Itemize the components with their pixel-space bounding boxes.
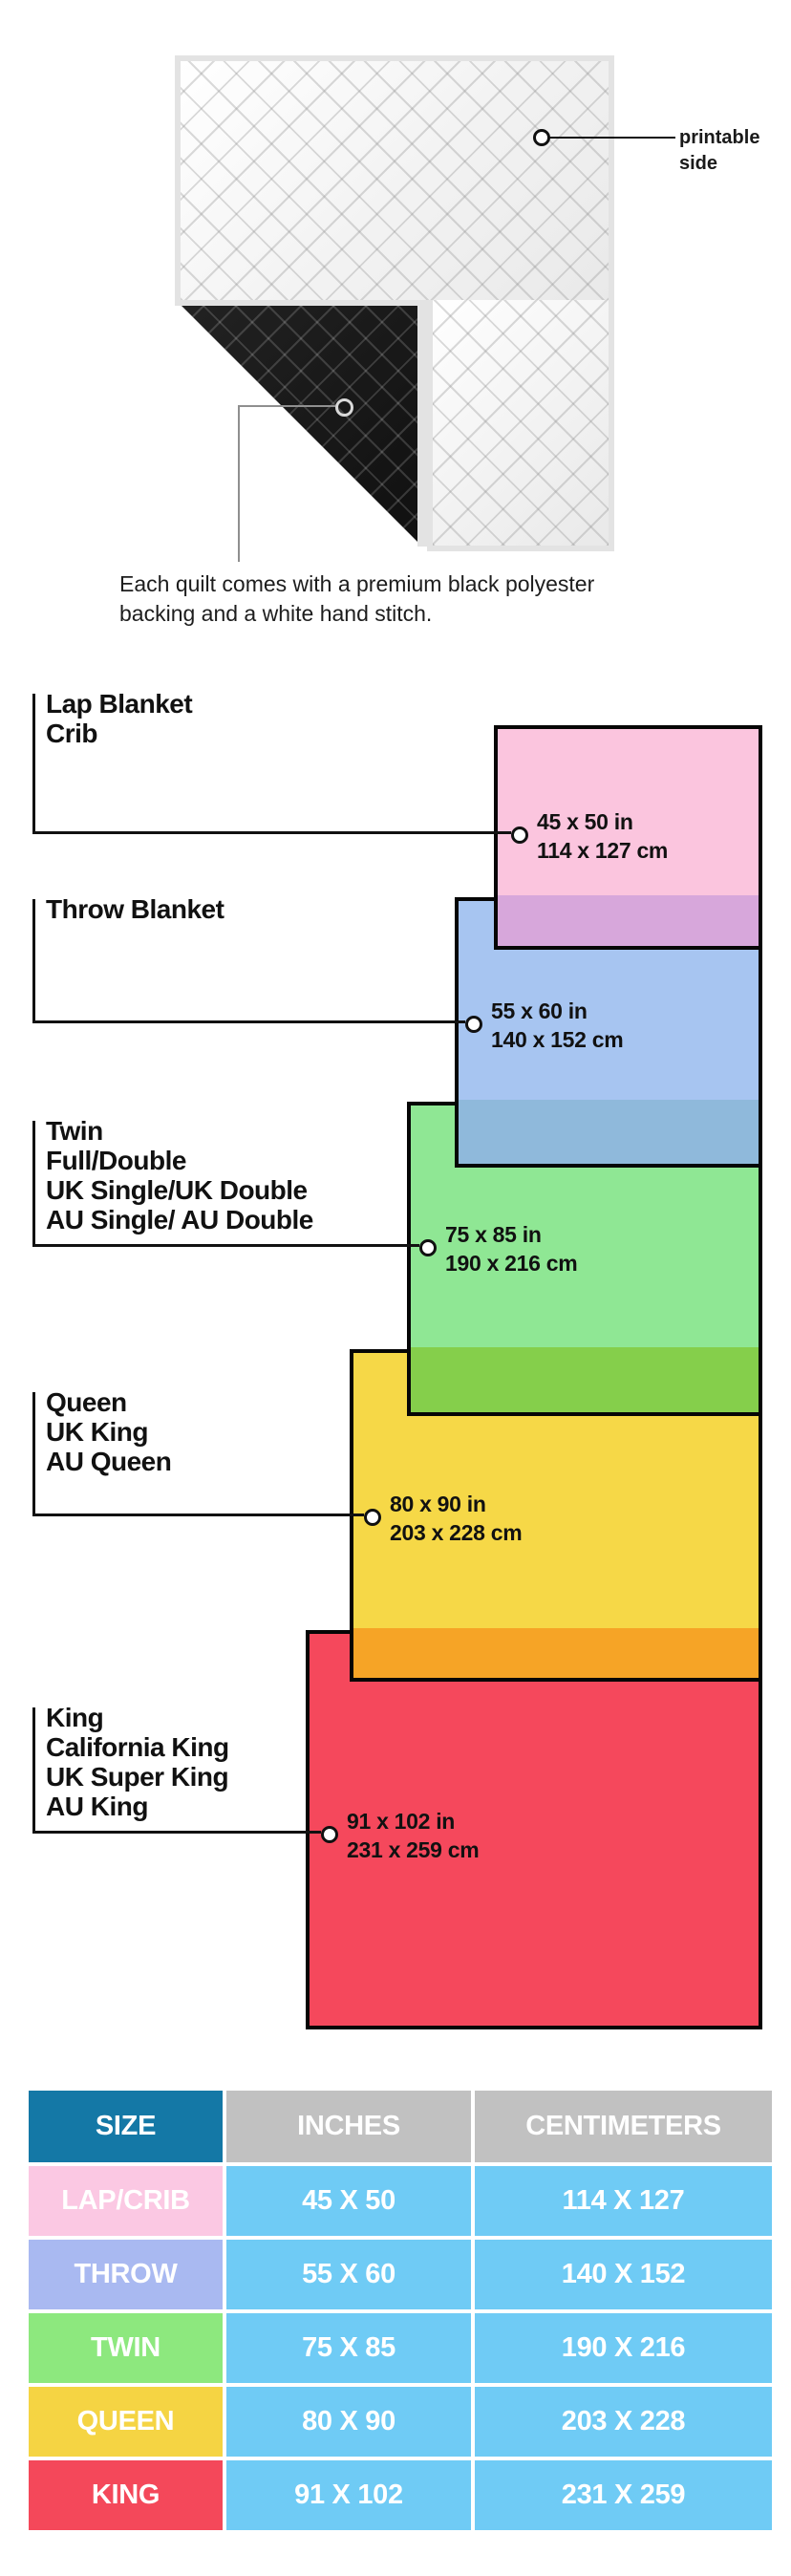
throw-callout-circle-icon <box>465 1016 482 1033</box>
table-row-lap-cm: 114 X 127 <box>475 2166 772 2236</box>
table-row-throw-cm: 140 X 152 <box>475 2240 772 2309</box>
lap-callout-circle-icon <box>511 826 528 844</box>
queen-callout-circle-icon <box>364 1509 381 1526</box>
twin-label: Twin Full/Double UK Single/UK Double AU … <box>46 1116 313 1234</box>
king-label: King California King UK Super King AU Ki… <box>46 1703 229 1821</box>
hero-caption: Each quilt comes with a premium black po… <box>119 569 594 629</box>
twin-callout-circle-icon <box>419 1239 437 1256</box>
twin-measurements: 75 x 85 in 190 x 216 cm <box>445 1220 577 1277</box>
king-callout-circle-icon <box>321 1826 338 1843</box>
table-row-king-cm: 231 X 259 <box>475 2460 772 2530</box>
table-row-queen-cm: 203 X 228 <box>475 2387 772 2457</box>
queen-measurements: 80 x 90 in 203 x 228 cm <box>390 1490 522 1547</box>
table-header-centimeters: CENTIMETERS <box>475 2091 772 2162</box>
backing-callout-line-v <box>238 405 240 562</box>
king-leader-h <box>32 1831 321 1834</box>
throw-leader-v <box>32 899 35 1023</box>
queen-leader-h <box>32 1513 364 1516</box>
lap-measurements: 45 x 50 in 114 x 127 cm <box>537 807 668 865</box>
lap-leader-v <box>32 694 35 834</box>
backing-callout-line-h <box>238 405 335 407</box>
quilt-printable-side-lower <box>427 300 614 551</box>
table-row-throw-size: THROW <box>29 2240 223 2309</box>
table-row-king-inches: 91 X 102 <box>226 2460 471 2530</box>
lap-throw-overlap <box>498 895 759 946</box>
table-row-twin-size: TWIN <box>29 2313 223 2383</box>
table-header-inches: INCHES <box>226 2091 471 2162</box>
throw-leader-h <box>32 1020 465 1023</box>
queen-leader-v <box>32 1392 35 1516</box>
table-row-queen-size: QUEEN <box>29 2387 223 2457</box>
twin-queen-overlap <box>411 1347 759 1412</box>
throw-twin-overlap <box>459 1100 759 1164</box>
printable-side-callout-circle-icon <box>533 129 550 146</box>
printable-side-callout-line <box>549 137 675 139</box>
king-leader-v <box>32 1707 35 1834</box>
table-row-throw-inches: 55 X 60 <box>226 2240 471 2309</box>
twin-leader-h <box>32 1244 419 1247</box>
table-row-twin-inches: 75 X 85 <box>226 2313 471 2383</box>
table-row-queen-inches: 80 X 90 <box>226 2387 471 2457</box>
table-row-twin-cm: 190 X 216 <box>475 2313 772 2383</box>
table-row-lap-size: LAP/CRIB <box>29 2166 223 2236</box>
lap-label: Lap Blanket Crib <box>46 689 192 748</box>
twin-leader-v <box>32 1121 35 1247</box>
throw-label: Throw Blanket <box>46 894 224 924</box>
quilt-size-infographic: printable side Each quilt comes with a p… <box>0 0 791 2576</box>
quilt-binding-edge <box>417 306 427 547</box>
king-measurements: 91 x 102 in 231 x 259 cm <box>347 1807 479 1864</box>
table-header-size: SIZE <box>29 2091 223 2162</box>
table-row-lap-inches: 45 X 50 <box>226 2166 471 2236</box>
queen-label: Queen UK King AU Queen <box>46 1387 171 1476</box>
queen-king-overlap <box>353 1628 759 1678</box>
quilt-printable-side <box>175 55 614 306</box>
printable-side-label: printable side <box>679 125 759 177</box>
lap-leader-h <box>32 831 511 834</box>
throw-measurements: 55 x 60 in 140 x 152 cm <box>491 997 623 1054</box>
quilt-black-backing-fold <box>182 306 420 545</box>
table-row-king-size: KING <box>29 2460 223 2530</box>
backing-callout-circle-icon <box>335 398 353 417</box>
